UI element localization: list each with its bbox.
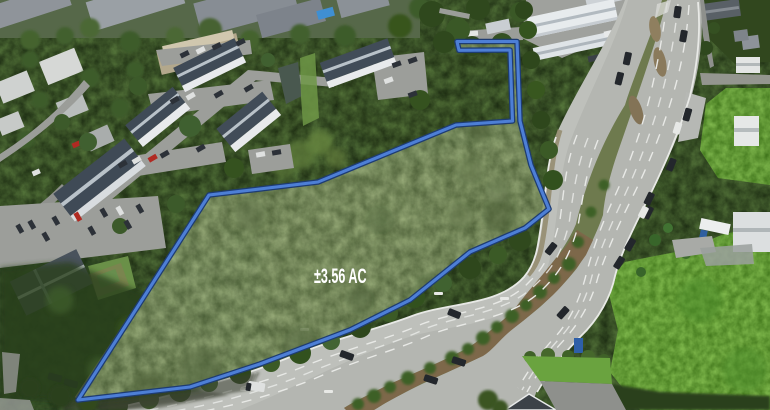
svg-text:±3.56 AC: ±3.56 AC bbox=[314, 264, 367, 288]
